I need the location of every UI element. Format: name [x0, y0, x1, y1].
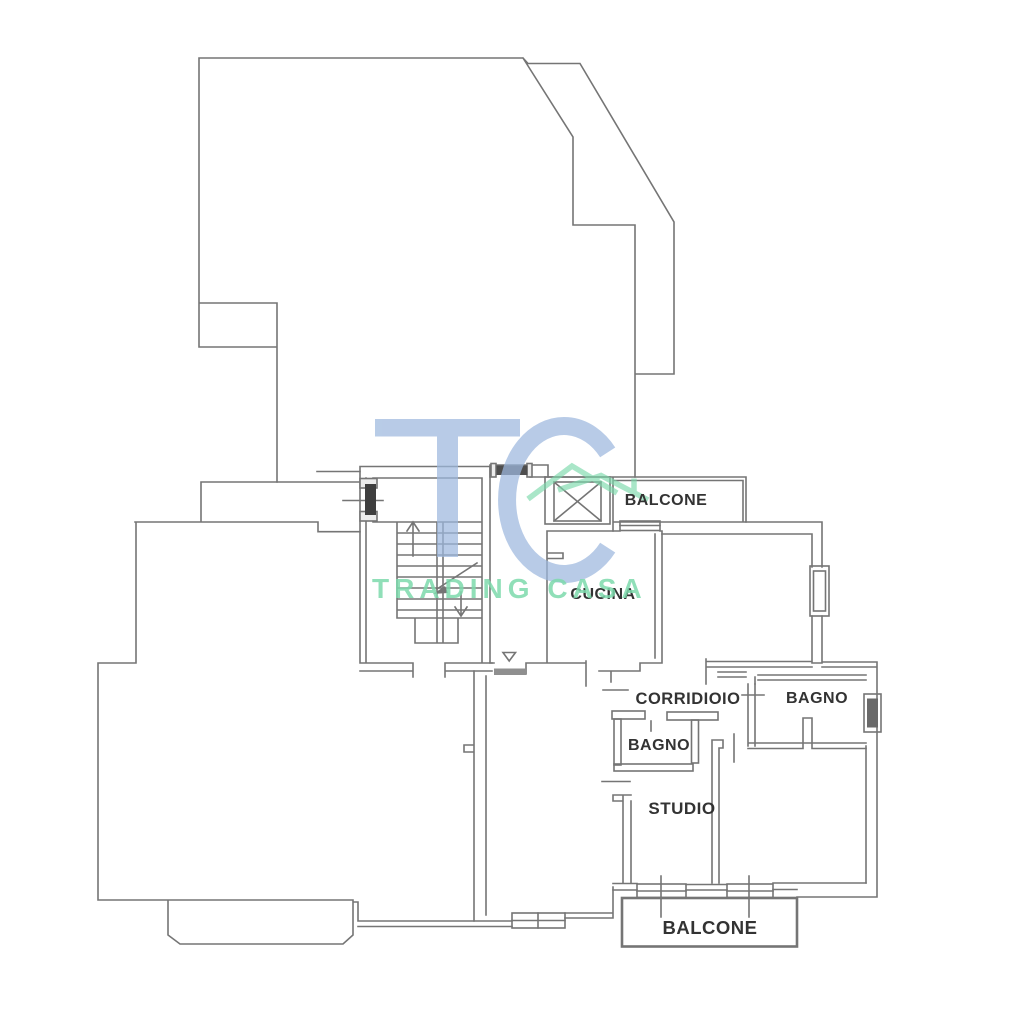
studio-walls [613, 795, 637, 890]
room-label-balcone-top: BALCONE [620, 493, 712, 509]
stair-landing-door [365, 484, 376, 515]
corridor-walls [602, 672, 764, 782]
bedroom-walls [662, 522, 877, 897]
stairwell [360, 467, 492, 678]
room-label-bagno-small: BAGNO [625, 738, 693, 754]
room-label-balcone-bottom: BALCONE [662, 919, 758, 938]
entrance-door-marker [503, 653, 516, 662]
upper-building-outline [199, 58, 674, 482]
watermark-logo: TC [375, 419, 648, 574]
elevator-door-cap [491, 464, 496, 478]
floor-plan-page: TC BALCONE CUCINA CORRIDIOIO BAGNO BAGNO… [0, 0, 1022, 1024]
tc-logo-icon [375, 419, 608, 574]
central-wall [464, 671, 486, 921]
room-label-bagno-right: BAGNO [783, 691, 851, 707]
left-room-walls [98, 472, 613, 945]
bathroom-right-walls [748, 675, 881, 749]
elevator-door-cap [527, 464, 532, 478]
room-label-studio: STUDIO [647, 800, 717, 817]
floor-plan-drawing: TC [0, 0, 1022, 1024]
watermark-brand-text: TRADING CASA [372, 573, 647, 605]
room-label-corridoio: CORRIDIOIO [630, 691, 746, 708]
entry-threshold [494, 669, 526, 676]
